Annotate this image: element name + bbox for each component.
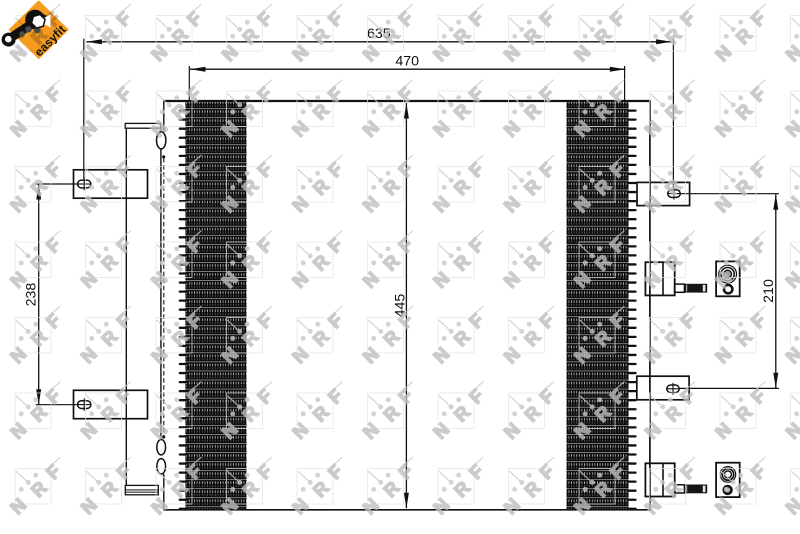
- svg-text:470: 470: [395, 53, 419, 69]
- svg-text:210: 210: [761, 279, 777, 303]
